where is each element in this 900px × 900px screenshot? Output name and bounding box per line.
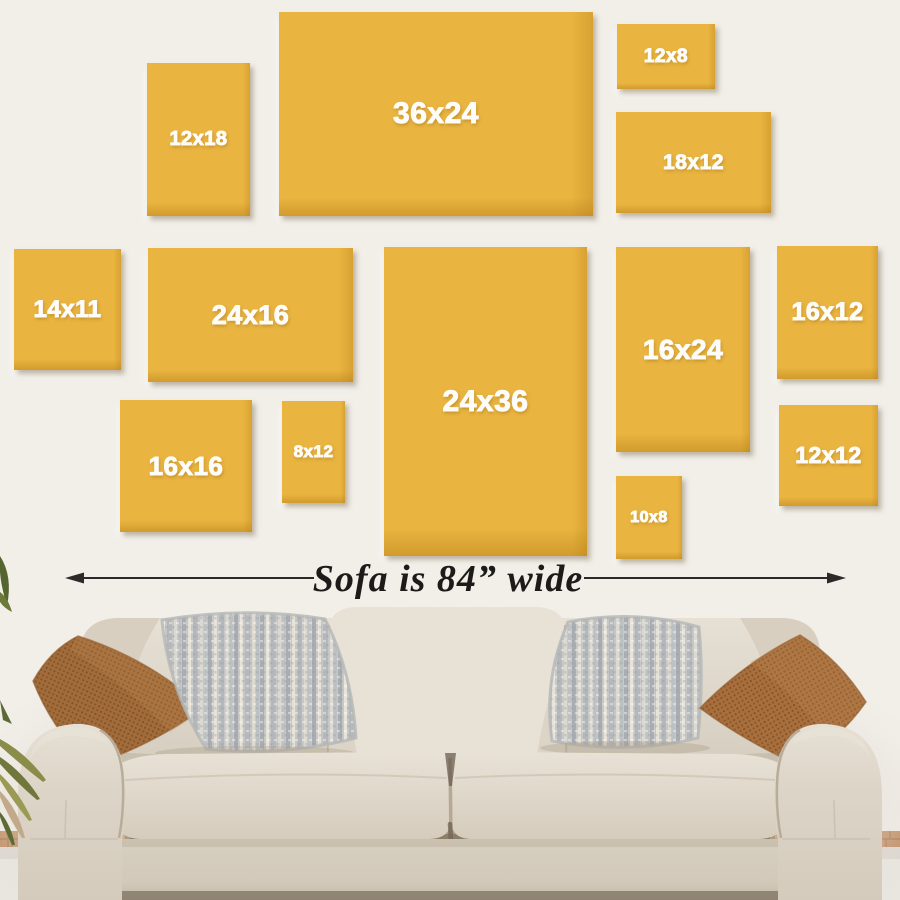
svg-text:Sofa is 84” wide: Sofa is 84” wide — [313, 558, 583, 600]
